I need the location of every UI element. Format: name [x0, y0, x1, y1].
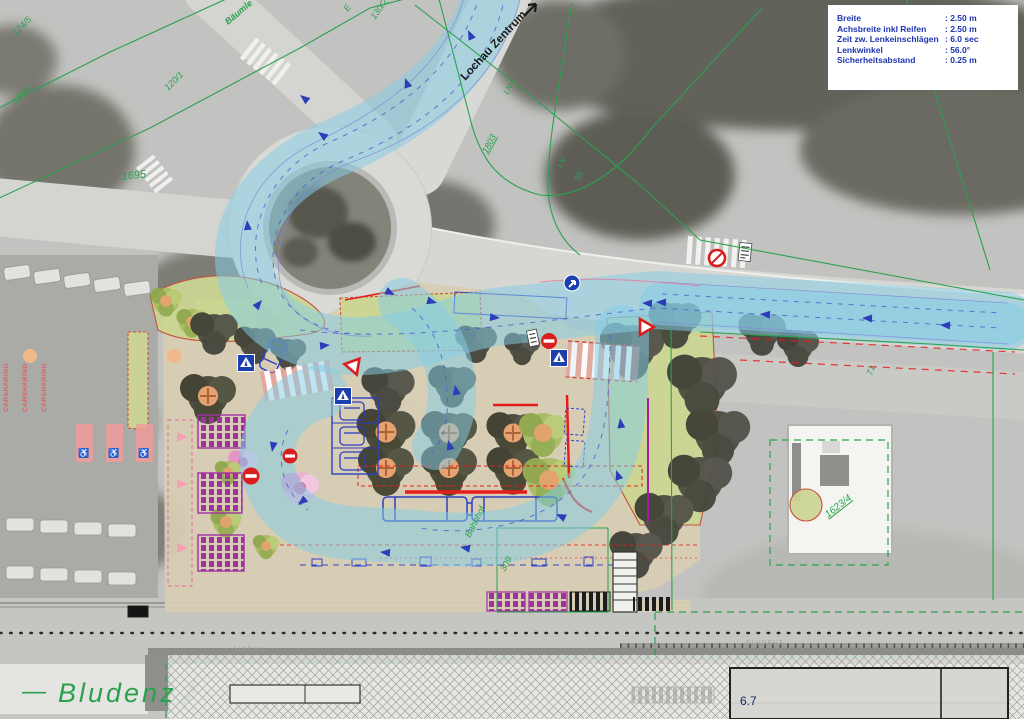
- info-sign-icon: [738, 242, 752, 261]
- svg-text:CARSHARING: CARSHARING: [41, 363, 48, 412]
- svg-text:CARSHARING: CARSHARING: [22, 363, 29, 412]
- legend-value: : 2.50 m: [945, 13, 1018, 24]
- vehicle-parameters-legend: Breite: 2.50 m Achsbreite inkl Reifen: 2…: [828, 5, 1018, 90]
- crosswalk-sign-icon: [238, 355, 255, 372]
- no-entry-sign-icon: [283, 449, 298, 464]
- svg-text:CARSHARING: CARSHARING: [3, 363, 10, 412]
- legend-value: : 6.0 sec: [945, 34, 1018, 45]
- wheelchair-icon: ♿: [138, 447, 149, 458]
- legend-label: Zeit zw. Lenkeinschlägen: [837, 34, 945, 45]
- swept-path-site-plan: ♿ ♿ ♿: [0, 0, 1024, 719]
- wheelchair-icon: ♿: [108, 447, 119, 458]
- legend-label: Sicherheitsabstand: [837, 55, 945, 66]
- svg-text:Bludenz: Bludenz: [58, 678, 177, 708]
- carsharing-labels: CARSHARING CARSHARING CARSHARING: [3, 363, 48, 412]
- legend-value: : 2.50 m: [945, 24, 1018, 35]
- swept-path-band-east: [660, 304, 1008, 324]
- no-entry-sign-icon: [243, 468, 260, 485]
- legend-label: Lenkwinkel: [837, 45, 945, 56]
- mandatory-direction-sign-icon: [564, 275, 580, 291]
- faint-label-bludenz: BLUDENZ: [746, 640, 783, 647]
- no-entry-sign-icon: [541, 333, 557, 349]
- site-plan-map: ♿ ♿ ♿: [0, 0, 1024, 719]
- crosswalk-sign-icon: [551, 350, 568, 367]
- legend-value: : 56.0°: [945, 45, 1018, 56]
- disabled-parking-stalls: ♿ ♿ ♿: [76, 424, 153, 462]
- legend-label: Achsbreite inkl Reifen: [837, 24, 945, 35]
- legend-value: : 0.25 m: [945, 55, 1018, 66]
- crosswalk-sign-icon: [335, 388, 352, 405]
- svg-text:—: —: [21, 678, 47, 705]
- legend-label: Breite: [837, 13, 945, 24]
- measurement-6-7: 6.7: [740, 694, 757, 708]
- faint-label-lindau: LINDAU: [234, 647, 265, 653]
- wheelchair-icon: ♿: [78, 447, 89, 458]
- no-stopping-sign-icon: [709, 250, 725, 266]
- street-label-bludenz: — Bludenz: [21, 678, 177, 708]
